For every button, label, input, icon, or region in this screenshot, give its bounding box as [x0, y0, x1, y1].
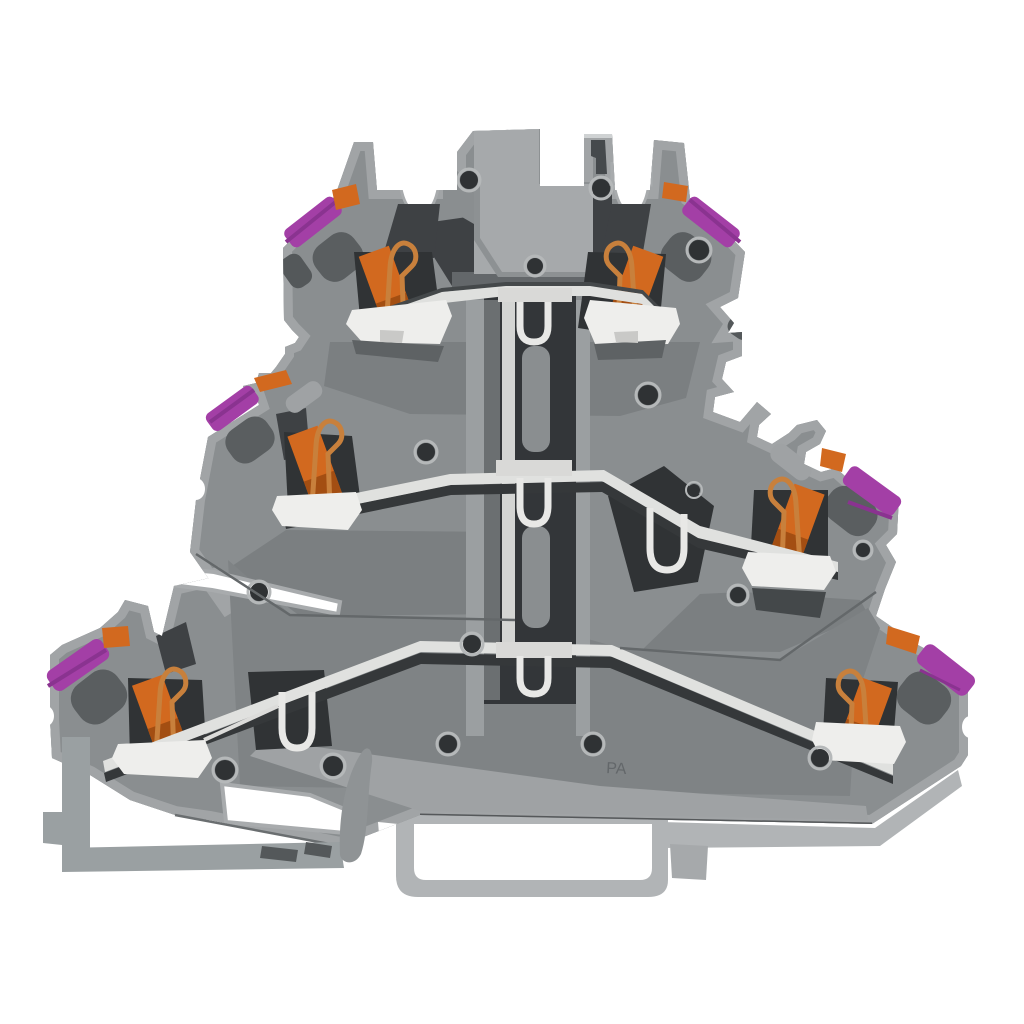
svg-text:PA: PA [606, 760, 627, 778]
